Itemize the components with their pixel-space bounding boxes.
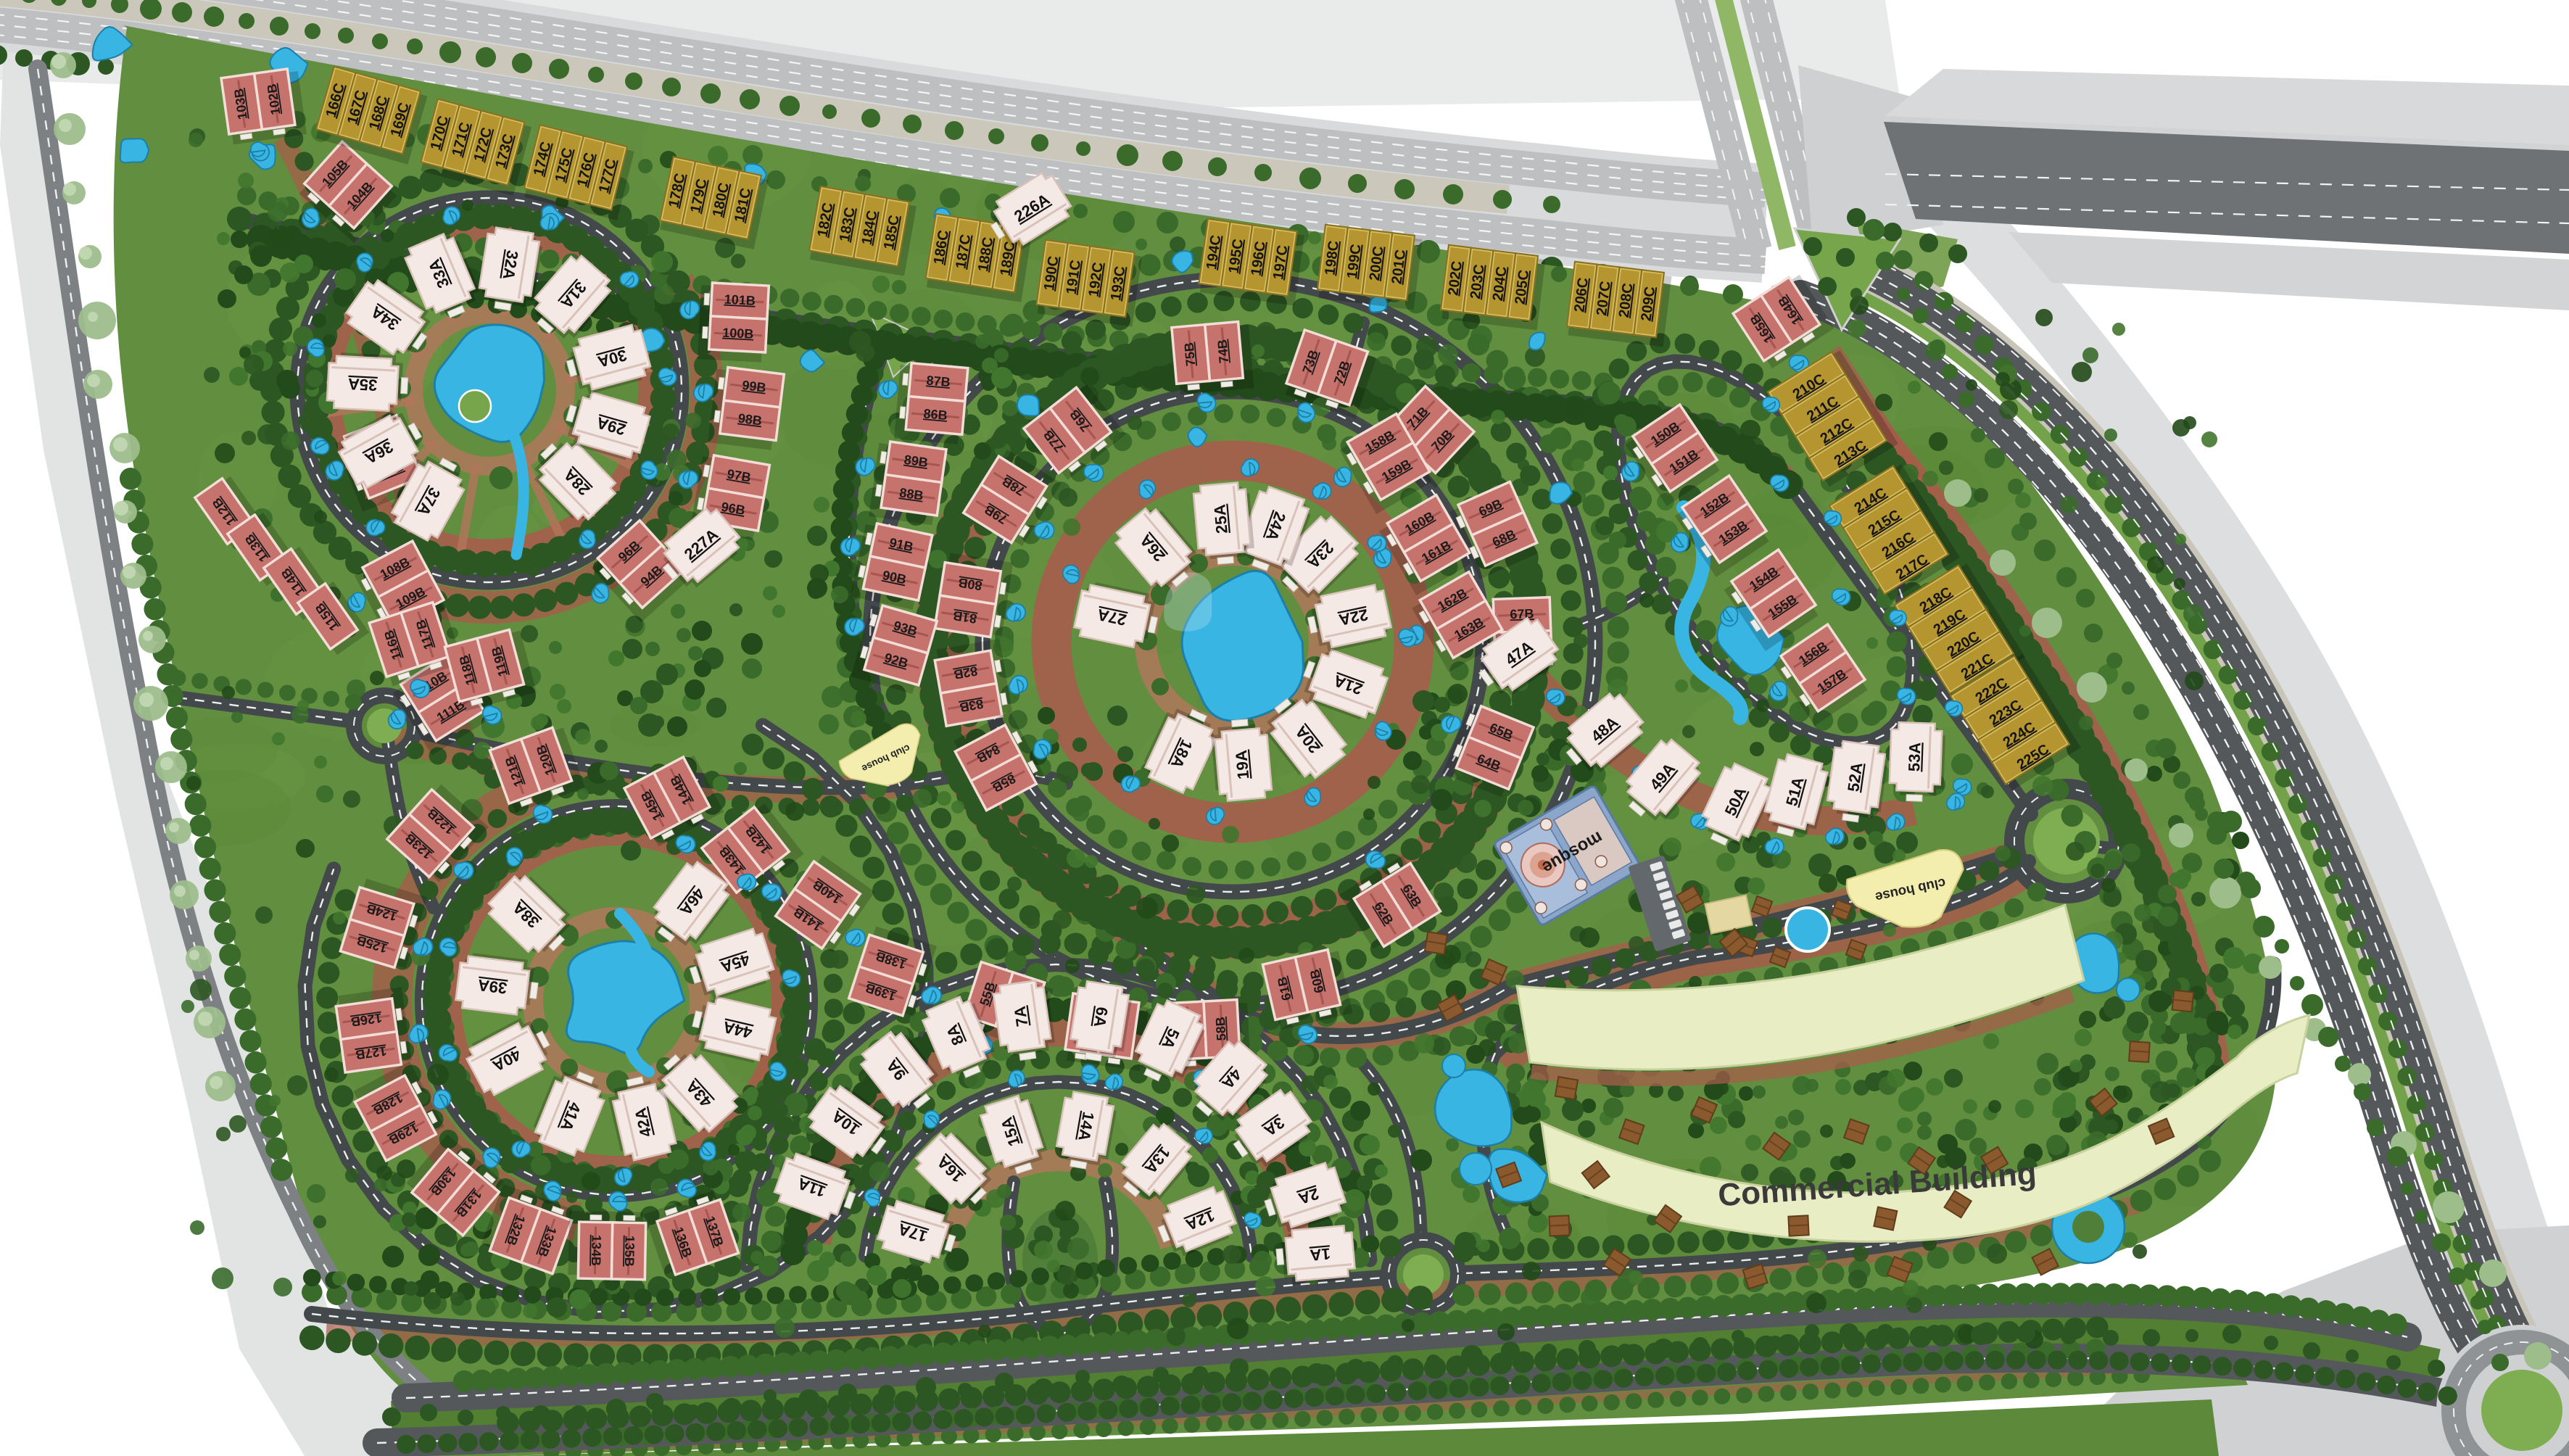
svg-text:6A: 6A	[1091, 1006, 1112, 1029]
svg-text:87B: 87B	[926, 373, 951, 389]
svg-text:99B: 99B	[741, 378, 766, 395]
svg-text:19A: 19A	[1232, 749, 1252, 779]
svg-text:67B: 67B	[1510, 606, 1534, 621]
svg-text:53A: 53A	[1905, 742, 1924, 772]
svg-text:100B: 100B	[722, 326, 754, 342]
svg-text:1A: 1A	[1310, 1244, 1331, 1264]
svg-text:25A: 25A	[1210, 503, 1230, 534]
svg-text:58B: 58B	[1213, 1017, 1229, 1041]
svg-text:35A: 35A	[347, 375, 378, 394]
svg-text:134B: 134B	[589, 1235, 604, 1266]
svg-text:98B: 98B	[737, 411, 763, 429]
svg-text:86B: 86B	[923, 406, 948, 423]
svg-text:75B: 75B	[1182, 342, 1199, 367]
svg-text:135B: 135B	[622, 1236, 637, 1267]
svg-text:74B: 74B	[1215, 339, 1231, 364]
svg-text:7A: 7A	[1011, 1005, 1032, 1027]
svg-text:101B: 101B	[724, 292, 756, 308]
svg-text:39A: 39A	[476, 976, 508, 998]
